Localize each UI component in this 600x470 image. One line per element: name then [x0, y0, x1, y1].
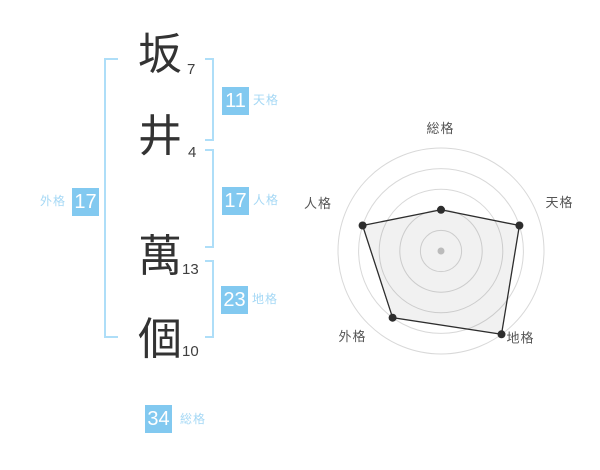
gaikaku-label: 外格 [40, 195, 66, 207]
radar-data-point-地格 [498, 330, 506, 338]
soukaku-label: 総格 [180, 413, 206, 425]
radar-axis-label-地格: 地格 [506, 331, 534, 346]
given-char-1: 萬 [138, 235, 182, 279]
radar-data-polygon [363, 210, 520, 334]
chikaku-score-badge: 23 [221, 286, 248, 314]
radar-data-point-天格 [515, 222, 523, 230]
radar-chart: 総格天格地格外格人格 [300, 115, 590, 355]
radar-data-point-人格 [359, 222, 367, 230]
chikaku-label: 地格 [252, 293, 278, 305]
radar-data-point-総格 [437, 206, 445, 214]
given-char-1-stroke-count: 13 [182, 262, 199, 277]
jinkaku-score-badge: 17 [222, 187, 249, 215]
surname-char-2: 井 [138, 115, 182, 159]
radar-axis-label-天格: 天格 [545, 195, 573, 210]
surname-char-1-stroke-count: 7 [187, 62, 195, 77]
given-char-2-stroke-count: 10 [182, 344, 199, 359]
name-fortune-result-panel: 坂 7 井 4 萬 13 個 10 11 天格 17 人格 23 地格 外格 1… [0, 0, 600, 470]
jinkaku-label: 人格 [253, 194, 279, 206]
radar-axis-label-外格: 外格 [338, 329, 366, 344]
jinkaku-bracket [205, 149, 214, 248]
tenkaku-label: 天格 [253, 94, 279, 106]
radar-data-point-外格 [389, 314, 397, 322]
surname-char-2-stroke-count: 4 [188, 145, 196, 160]
radar-axis-label-総格: 総格 [426, 121, 454, 136]
tenkaku-bracket [205, 58, 214, 141]
tenkaku-score-badge: 11 [222, 87, 249, 115]
gaikaku-score-badge: 17 [72, 188, 99, 216]
soukaku-score-badge: 34 [145, 405, 172, 433]
gaikaku-bracket [104, 58, 118, 338]
given-char-2: 個 [138, 318, 182, 362]
chikaku-bracket [205, 260, 214, 338]
radar-axis-label-人格: 人格 [304, 196, 332, 211]
surname-char-1: 坂 [138, 33, 182, 77]
